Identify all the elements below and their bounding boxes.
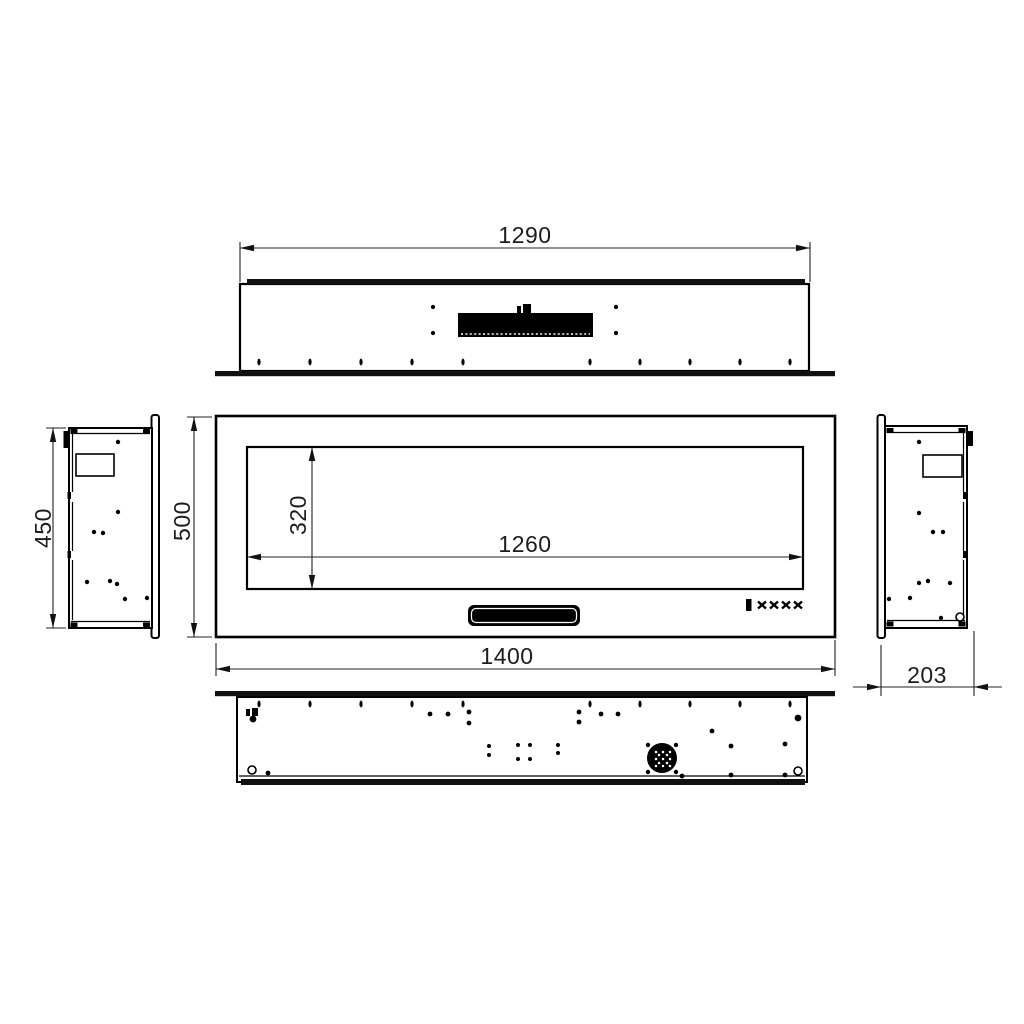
bottom-view-flange	[215, 691, 835, 696]
dim-label-side-height: 450	[30, 508, 56, 548]
vent-slot	[638, 359, 641, 366]
hole-dot	[487, 753, 491, 757]
arrowhead	[974, 684, 988, 690]
hole-dot	[446, 712, 451, 717]
arrowhead	[191, 417, 197, 431]
fan-speckle	[669, 751, 672, 754]
corner-bracket	[71, 623, 78, 628]
hole-dot	[487, 744, 491, 748]
hole-dot	[710, 729, 715, 734]
fan-circle	[647, 743, 677, 773]
dim-label-side-depth: 203	[907, 662, 947, 688]
logo-bar	[746, 599, 752, 611]
hole-dot	[116, 510, 120, 514]
vent-slot	[588, 359, 591, 366]
arrowhead	[796, 245, 810, 251]
hole-dot	[528, 743, 532, 747]
hole-dot	[145, 596, 149, 600]
vent-slot	[461, 701, 464, 708]
hole-dot	[467, 710, 472, 715]
hole-dot	[783, 742, 788, 747]
hole-dot	[516, 757, 520, 761]
fan-speckle	[669, 758, 672, 761]
hole-dot	[108, 579, 112, 583]
corner-bracket	[887, 622, 894, 627]
dim-label-top-width: 1290	[498, 222, 551, 248]
hole-dot	[795, 715, 802, 722]
vent-slot	[738, 359, 741, 366]
hole-dot	[680, 774, 685, 779]
fan-screw-dot	[646, 743, 650, 747]
dim-label-front-height: 500	[169, 501, 195, 541]
dim-side-height: 450	[30, 428, 56, 628]
dim-label-window-width: 1260	[498, 531, 551, 557]
hole-dot	[616, 712, 621, 717]
fan-speckle	[666, 754, 669, 757]
vent-slot	[257, 359, 260, 366]
dim-front-height: 500	[169, 417, 197, 637]
fan-speckle	[655, 758, 658, 761]
top-view-front-edge-strip	[247, 279, 805, 285]
ring-hole	[248, 766, 256, 774]
hole-dot	[908, 596, 912, 600]
corner-bracket	[71, 429, 78, 434]
hole-dot	[729, 773, 734, 778]
hole-dot	[556, 751, 560, 755]
hole-dot	[917, 581, 921, 585]
hole-dot	[729, 744, 734, 749]
hole-dot	[428, 712, 433, 717]
edge-notch	[68, 492, 72, 499]
bottom-back-strip	[241, 779, 805, 785]
vent-slot	[688, 359, 691, 366]
arrowhead	[821, 666, 835, 672]
hole-dot	[85, 580, 89, 584]
vent-slot	[738, 701, 741, 708]
hole-dot	[948, 581, 952, 585]
hole-dot	[917, 440, 921, 444]
hole-dot	[614, 331, 618, 335]
fan-speckle	[662, 765, 665, 768]
technical-drawing: 1290 5	[0, 0, 1024, 1024]
arrowhead	[240, 245, 254, 251]
dim-front-width: 1400	[216, 643, 835, 672]
vent-slot	[588, 701, 591, 708]
hole-dot	[431, 305, 435, 309]
fan-speckle	[662, 751, 665, 754]
label-mark	[517, 306, 521, 313]
front-viewing-window	[247, 447, 803, 589]
fan-speckle	[655, 765, 658, 768]
vent-slot	[257, 701, 260, 708]
fan-speckle	[662, 758, 665, 761]
dim-side-depth: 203	[853, 662, 1002, 690]
arrowhead	[191, 623, 197, 637]
left-cutout	[76, 454, 114, 476]
hole-dot	[516, 743, 520, 747]
arrowhead	[50, 428, 56, 442]
corner-bracket	[959, 622, 966, 627]
mounting-tab	[967, 431, 974, 446]
vent-slot	[788, 359, 791, 366]
fan-speckle	[669, 765, 672, 768]
dim-label-front-width: 1400	[480, 643, 533, 669]
fan-screw-dot	[646, 770, 650, 774]
right-cutout	[923, 455, 962, 477]
left-side-view: 450	[30, 415, 159, 638]
hole-dot	[431, 331, 435, 335]
hole-dot	[783, 773, 788, 778]
drawing-canvas: 1290 5	[0, 0, 1024, 1024]
hole-dot	[577, 720, 582, 725]
hole-dot	[941, 530, 945, 534]
hole-dot	[577, 710, 582, 715]
hole-dot	[467, 721, 472, 726]
dim-label-window-height: 320	[285, 495, 311, 535]
ring-hole	[794, 767, 802, 775]
vent-slot	[308, 701, 311, 708]
bottom-view-body	[237, 697, 807, 782]
vent-slot	[688, 701, 691, 708]
vent-slot	[308, 359, 311, 366]
hole-dot	[917, 511, 921, 515]
hole-dot	[614, 305, 618, 309]
vent-slot	[461, 359, 464, 366]
corner-bracket	[143, 623, 150, 628]
dim-top-width: 1290	[240, 222, 810, 251]
fan-speckle	[658, 754, 661, 757]
hole-dot	[266, 771, 271, 776]
hole-dot	[556, 743, 560, 747]
front-view: 500 320 1260 1400	[169, 416, 835, 676]
right-side-view: 203	[853, 415, 1002, 696]
mounting-tab	[64, 431, 70, 448]
hole-dot	[599, 712, 604, 717]
vent-slot	[410, 359, 413, 366]
arrowhead	[216, 666, 230, 672]
vent-slot	[638, 701, 641, 708]
edge-notch	[963, 551, 967, 558]
edge-notch	[963, 492, 967, 499]
vent-slot	[359, 701, 362, 708]
fan-screw-dot	[674, 743, 678, 747]
fan-screw-dot	[674, 770, 678, 774]
hole-dot	[101, 531, 105, 535]
corner-bracket	[959, 428, 966, 433]
edge-notch	[68, 551, 72, 558]
fan-speckle	[658, 762, 661, 765]
corner-bracket	[143, 429, 150, 434]
top-view-flange	[215, 371, 835, 376]
arrowhead	[867, 684, 881, 690]
hole-dot	[250, 716, 257, 723]
label-mark	[252, 708, 258, 716]
top-view: 1290	[215, 222, 835, 376]
hole-dot	[123, 597, 127, 601]
vent-slot	[359, 359, 362, 366]
vent-slot	[788, 701, 791, 708]
arrowhead	[50, 614, 56, 628]
vent-slot	[410, 701, 413, 708]
hole-dot	[528, 757, 532, 761]
hole-dot	[887, 597, 891, 601]
hole-dot	[939, 616, 943, 620]
fan-speckle	[666, 762, 669, 765]
right-view-rings	[956, 613, 964, 621]
right-flange	[878, 415, 886, 638]
hole-dot	[931, 530, 935, 534]
corner-bracket	[887, 428, 894, 433]
label-mark	[246, 709, 250, 716]
fan-speckle	[655, 751, 658, 754]
ring-hole	[956, 613, 964, 621]
bottom-view	[215, 691, 835, 785]
hole-dot	[116, 440, 120, 444]
hole-dot	[92, 530, 96, 534]
hole-dot	[926, 579, 930, 583]
label-mark	[523, 304, 531, 313]
hole-dot	[115, 582, 119, 586]
